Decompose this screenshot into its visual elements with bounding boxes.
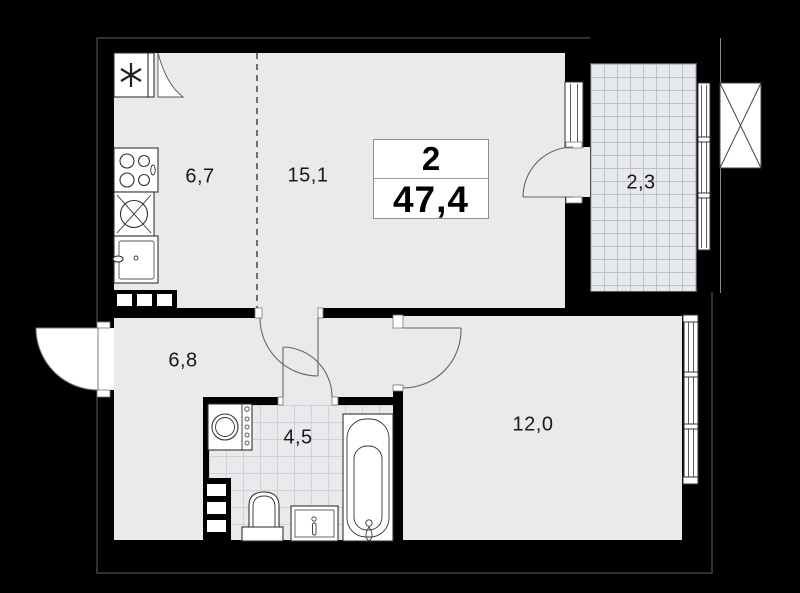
toilet-icon	[242, 492, 283, 541]
room-label-living: 15,1	[288, 165, 329, 188]
kitchen-cabinet-icon	[113, 236, 158, 283]
bedroom-door-arc	[403, 328, 461, 388]
balcony-door-arc	[523, 147, 573, 197]
rooms-count: 2	[374, 140, 488, 179]
bathtub-icon	[343, 414, 393, 541]
stove-icon	[114, 148, 158, 192]
washing-machine-icon	[208, 404, 252, 450]
bedroom-window	[683, 315, 698, 484]
room-label-balcony: 2,3	[626, 172, 655, 195]
bathroom-door-arc	[283, 347, 332, 397]
room-label-bathroom: 4,5	[283, 427, 312, 450]
sink-vanity-icon	[291, 506, 338, 541]
apartment-summary-box: 2 47,4	[373, 139, 489, 219]
room-label-hallway: 6,8	[168, 350, 197, 373]
kitchen-sink-icon	[114, 192, 154, 236]
balcony-exterior-window	[698, 83, 710, 250]
entrance-door-arc	[36, 328, 98, 390]
room-label-kitchen: 6,7	[185, 166, 214, 189]
plan-drawing	[0, 0, 800, 593]
total-area: 47,4	[374, 179, 488, 221]
exterior-element-x-icon	[720, 83, 761, 168]
building-outline	[97, 38, 712, 573]
fridge-icon	[114, 53, 183, 97]
living-balcony-window	[565, 82, 583, 147]
floor-plan: 6,7 15,1 2,3 6,8 4,5 12,0 2 47,4	[0, 0, 800, 593]
room-label-bedroom: 12,0	[513, 414, 554, 437]
